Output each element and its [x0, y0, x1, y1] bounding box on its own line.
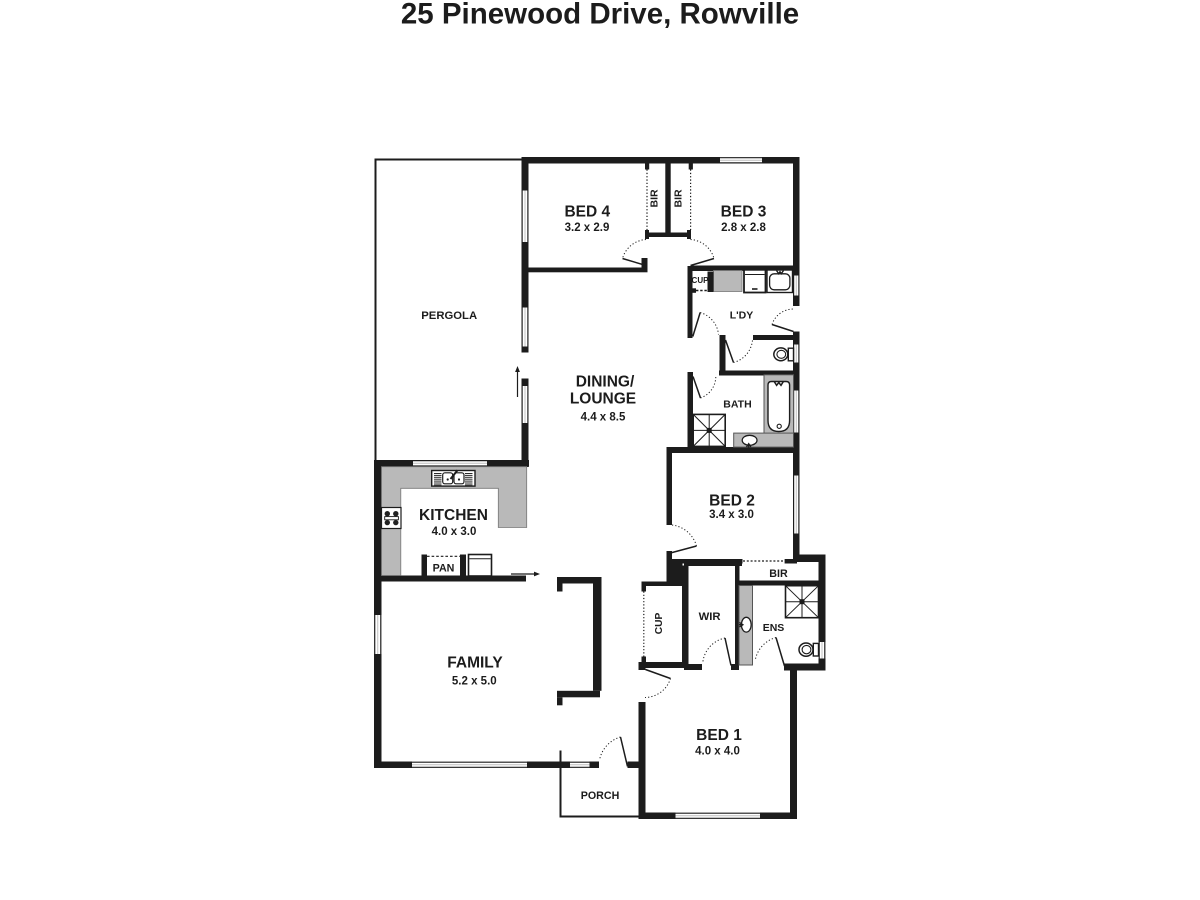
svg-text:25 Pinewood Drive, Rowville: 25 Pinewood Drive, Rowville	[401, 0, 799, 31]
svg-text:ENS: ENS	[763, 622, 785, 634]
svg-text:WIR: WIR	[699, 611, 721, 623]
svg-text:4.0 x 4.0: 4.0 x 4.0	[695, 746, 740, 758]
svg-text:BED 1: BED 1	[696, 727, 742, 744]
svg-text:CUP: CUP	[692, 276, 710, 285]
svg-text:L'DY: L'DY	[730, 310, 754, 322]
svg-text:CUP: CUP	[654, 613, 665, 635]
svg-text:KITCHEN: KITCHEN	[419, 507, 488, 524]
svg-text:BIR: BIR	[769, 568, 788, 580]
svg-text:4.4 x 8.5: 4.4 x 8.5	[581, 412, 626, 424]
svg-text:PORCH: PORCH	[581, 790, 620, 802]
svg-text:LOUNGE: LOUNGE	[570, 391, 636, 408]
svg-text:PAN: PAN	[433, 563, 455, 575]
svg-text:2.8 x 2.8: 2.8 x 2.8	[721, 222, 766, 234]
svg-text:BIR: BIR	[673, 189, 685, 208]
svg-text:BATH: BATH	[723, 399, 751, 411]
svg-text:FAMILY: FAMILY	[447, 655, 503, 672]
svg-text:BED 4: BED 4	[564, 204, 610, 221]
svg-text:3.2 x 2.9: 3.2 x 2.9	[565, 222, 610, 234]
svg-text:3.4 x 3.0: 3.4 x 3.0	[709, 509, 754, 521]
svg-text:DINING/: DINING/	[576, 374, 635, 391]
svg-text:BIR: BIR	[649, 189, 661, 208]
svg-text:PERGOLA: PERGOLA	[421, 310, 477, 322]
svg-text:BED 3: BED 3	[721, 204, 767, 221]
svg-text:4.0 x 3.0: 4.0 x 3.0	[432, 526, 477, 538]
svg-text:5.2 x 5.0: 5.2 x 5.0	[452, 676, 497, 688]
svg-text:BED 2: BED 2	[709, 492, 755, 509]
